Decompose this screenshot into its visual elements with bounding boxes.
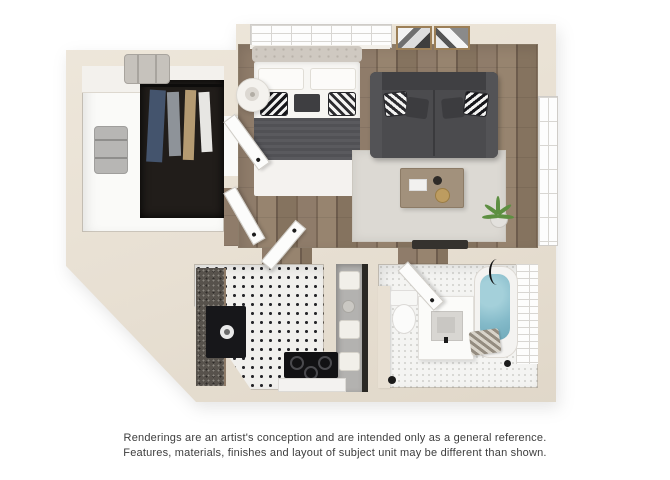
sofa-backrest bbox=[370, 72, 498, 90]
toilet bbox=[390, 290, 418, 336]
tub-tile-wall bbox=[516, 264, 538, 364]
suitcase-strap bbox=[95, 139, 127, 141]
bed-chevron-pillow-right bbox=[328, 92, 356, 116]
closet-hanging-clothes bbox=[140, 80, 224, 218]
bed-accent-pillow bbox=[294, 94, 320, 112]
linen-towels bbox=[339, 271, 360, 290]
shower-hose bbox=[489, 259, 505, 285]
coffee-table bbox=[400, 168, 464, 208]
door-knob bbox=[255, 157, 261, 163]
sink-faucet bbox=[444, 337, 448, 343]
potted-plant bbox=[480, 192, 516, 232]
suitcase-on-shelf bbox=[124, 54, 170, 84]
disclaimer: Renderings are an artist's conception an… bbox=[0, 431, 670, 461]
bed-pillow-right bbox=[310, 68, 356, 90]
sink-basin bbox=[437, 317, 455, 333]
sofa-pattern-pillow-right bbox=[463, 91, 490, 118]
tub-faucet bbox=[504, 360, 511, 367]
hallway-mat bbox=[412, 240, 468, 249]
sofa-dark-pillow-left bbox=[405, 97, 430, 120]
linen-jar bbox=[342, 300, 355, 313]
bathroom-vanity bbox=[418, 296, 474, 360]
toilet-bowl bbox=[392, 304, 416, 334]
living-room-window bbox=[538, 96, 558, 246]
nightstand bbox=[236, 78, 270, 112]
sofa-armrest-right bbox=[486, 72, 498, 158]
closet-rod bbox=[140, 84, 224, 87]
clothes-item-navy bbox=[146, 90, 166, 163]
bed-headboard bbox=[252, 46, 362, 62]
kitchen-appliance bbox=[206, 306, 246, 358]
bathroom-partition-wall bbox=[378, 286, 390, 388]
table-lamp-finial bbox=[250, 92, 255, 97]
disclaimer-line-2: Features, materials, finishes and layout… bbox=[0, 446, 670, 461]
wall-art-frame-2 bbox=[434, 26, 470, 50]
bed-foot-sheet bbox=[254, 160, 360, 196]
bed-blanket bbox=[254, 118, 360, 160]
coffee-table-tray bbox=[435, 188, 450, 203]
clothes-item-gray bbox=[167, 92, 181, 156]
oven-front bbox=[278, 378, 346, 392]
linen-towels bbox=[339, 352, 360, 371]
suitcase-strap bbox=[137, 55, 139, 83]
door-knob bbox=[292, 228, 298, 234]
stove-burner bbox=[318, 356, 332, 370]
clothes-item-tan bbox=[183, 90, 196, 160]
sofa bbox=[370, 72, 498, 158]
door-knob bbox=[429, 297, 435, 303]
bed bbox=[252, 46, 362, 198]
stove-burner bbox=[290, 356, 304, 370]
suitcase bbox=[94, 126, 128, 174]
clothes-item-white bbox=[198, 92, 212, 152]
coffee-table-vase bbox=[433, 176, 442, 185]
sofa-cushion-seam bbox=[433, 90, 435, 156]
linen-closet-door-edge bbox=[362, 264, 368, 392]
sofa-armrest-left bbox=[370, 72, 382, 158]
tub-towel bbox=[468, 328, 501, 356]
cooking-pot-lid bbox=[224, 329, 230, 335]
linen-towels bbox=[339, 320, 360, 339]
disclaimer-line-1: Renderings are an artist's conception an… bbox=[0, 431, 670, 446]
shower-drain bbox=[388, 376, 396, 384]
suitcase-strap bbox=[95, 157, 127, 159]
floorplan-rendering: Renderings are an artist's conception an… bbox=[0, 0, 670, 480]
stove-cooktop bbox=[284, 352, 338, 378]
bathroom-doorway bbox=[398, 248, 448, 264]
suitcase-strap bbox=[155, 55, 157, 83]
door-knob bbox=[251, 232, 256, 237]
wall-art-frame-1 bbox=[396, 26, 432, 50]
coffee-table-books bbox=[409, 179, 427, 191]
sofa-dark-pillow-right bbox=[441, 97, 465, 119]
